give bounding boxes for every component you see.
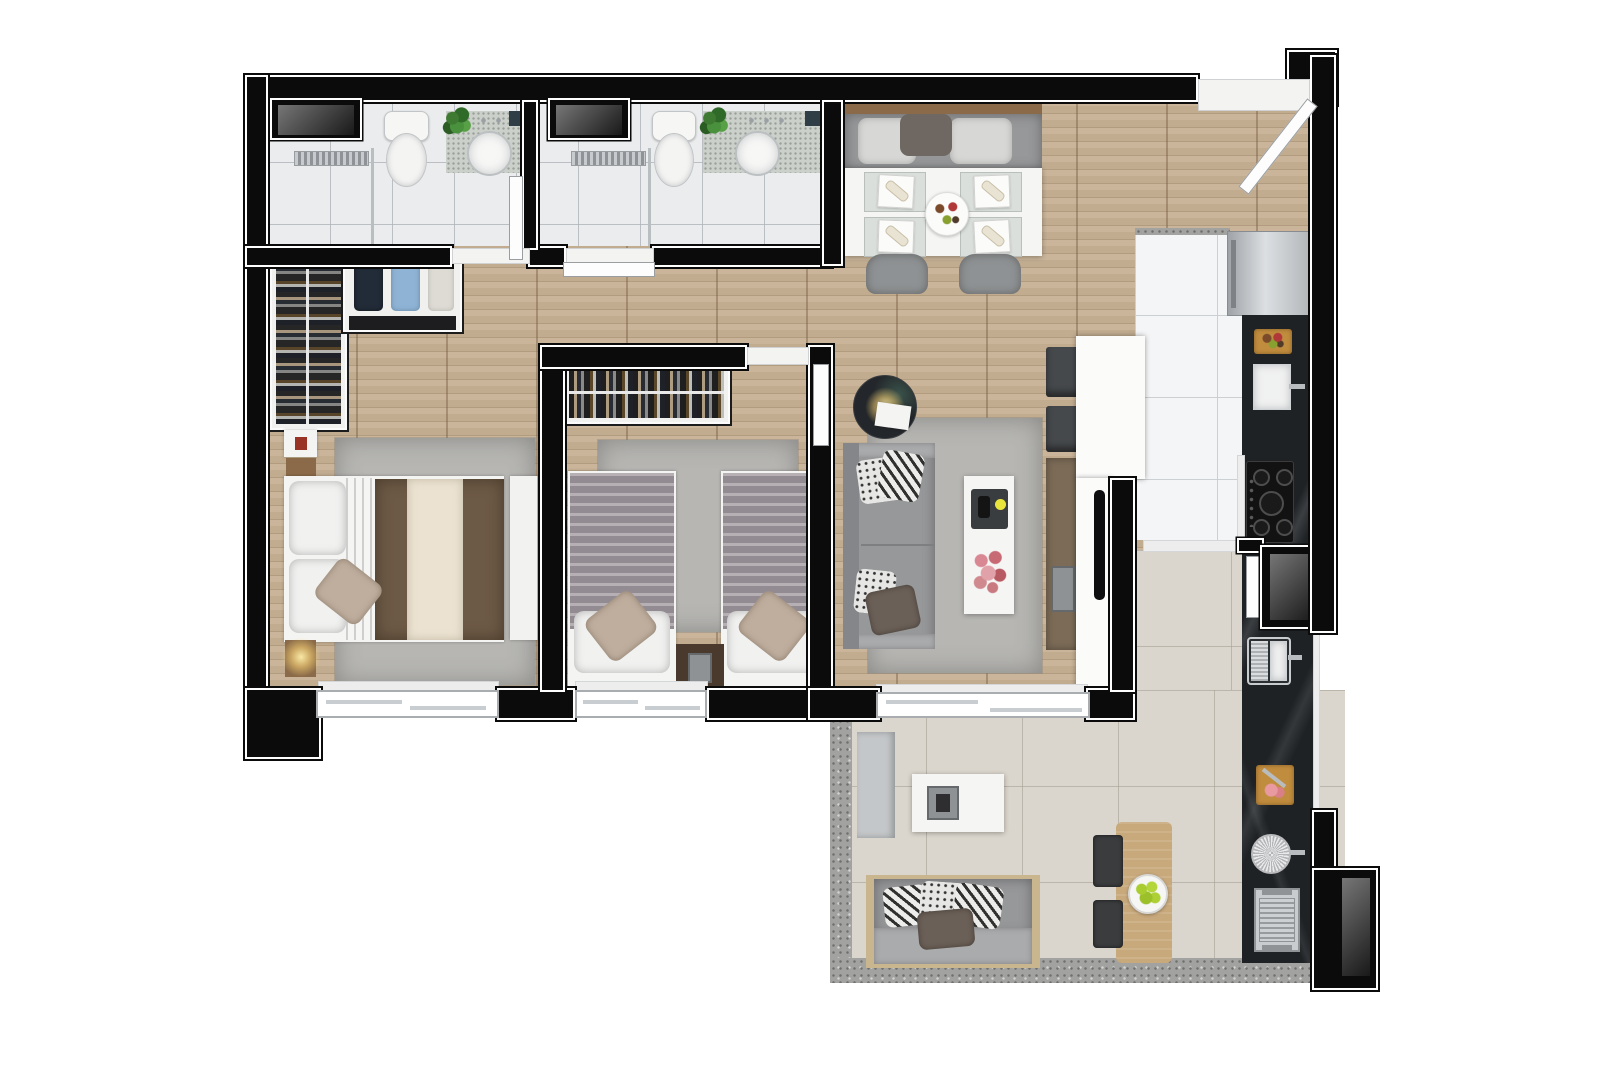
bath2-faucet: [742, 114, 786, 124]
tv-cabinet: [1046, 458, 1080, 650]
burner-3: [1259, 491, 1284, 516]
wardrobe-top-base: [349, 316, 456, 330]
bedroom1-dresser: [510, 476, 540, 640]
bath2-toilet-bowl: [654, 133, 694, 187]
cooktop-knobs: [1248, 477, 1256, 527]
centerpiece-dots: [929, 196, 965, 232]
bedroom2-nightstand-decor: [688, 653, 712, 683]
bed1-runner: [407, 479, 463, 640]
coffee-flowers: [968, 545, 1012, 597]
bath2-plant: [699, 105, 729, 138]
balcony-chair-2: [1093, 900, 1123, 948]
wall-bath-dining: [822, 100, 843, 266]
bath1-shower-drain: [294, 151, 369, 166]
balcony-sliding-door: [876, 692, 1090, 718]
wall-bedroom2-top: [540, 345, 747, 369]
balcony-pillow-4: [916, 908, 975, 951]
entry-threshold: [1198, 79, 1310, 111]
tv-cabinet-decor: [1051, 566, 1075, 612]
bedroom2-door: [813, 364, 829, 446]
balcony-chair-1: [1093, 835, 1123, 887]
laundry-basin: [1270, 641, 1287, 681]
balcony-granite-left: [830, 718, 852, 983]
pillar-niche: [1342, 878, 1370, 976]
laundry-washboard: [1251, 641, 1268, 681]
wall-right-lower: [1312, 810, 1336, 870]
bedroom1-window-glass-a: [326, 700, 402, 704]
kitchen-faucet: [1289, 384, 1305, 389]
bath1-shower-glass: [371, 148, 374, 246]
island-stool-2: [1046, 406, 1080, 452]
tray-yellow-ball: [995, 499, 1006, 510]
bath2-shower-glass: [648, 148, 651, 246]
spice-dots: [1258, 332, 1288, 350]
kitchen-sink: [1253, 364, 1291, 410]
wall-right: [1310, 55, 1336, 633]
nightstand-book: [295, 437, 307, 450]
bath2-soap-dish: [805, 111, 823, 126]
bedroom2-window-glass-a: [583, 700, 638, 704]
bedroom1-window: [316, 690, 499, 718]
nightstand-lamp-glow: [281, 637, 321, 677]
bedroom2-door-threshold: [747, 347, 809, 365]
dining-chair-1: [866, 254, 928, 294]
island-stool-1: [1046, 347, 1080, 397]
bath1-door: [509, 176, 523, 260]
wall-between-baths: [522, 100, 538, 250]
wardrobe-tall-divider: [306, 259, 309, 424]
tv: [1094, 490, 1105, 600]
balcony-slider-glass-a: [886, 700, 978, 704]
bbq-handle-bottom: [1262, 945, 1292, 950]
bath1-toilet-bowl: [386, 133, 427, 187]
bed1-pillow-1: [289, 481, 346, 555]
burner-2: [1276, 469, 1293, 486]
wall-left: [245, 75, 268, 759]
wall-window-pier-1: [497, 688, 575, 720]
balcony-round-sink: [1251, 834, 1291, 874]
balcony-cabinet: [857, 732, 895, 838]
bench-pillow-right: [950, 118, 1012, 164]
folded-clothes-navy: [354, 263, 383, 311]
wall-bath-bottom-c: [652, 246, 832, 267]
wardrobe2-divider: [569, 391, 724, 394]
side-table-card: [874, 402, 911, 430]
burner-5: [1276, 519, 1293, 536]
folded-clothes-cream: [428, 263, 454, 311]
fridge-handle: [1231, 240, 1236, 308]
bedroom2-window: [575, 690, 707, 718]
bath1-sink: [467, 131, 512, 176]
sofa-seam: [861, 544, 935, 546]
laundry-faucet: [1288, 655, 1302, 660]
balcony-slider-glass-b: [990, 708, 1082, 712]
balcony-sink-faucet: [1289, 850, 1305, 855]
wall-kitchen-living: [1110, 478, 1135, 692]
wall-balcony-stub-left: [808, 688, 880, 720]
bath2-door: [563, 262, 655, 277]
bath2-shower-drain: [571, 151, 646, 166]
bbq-handle-top: [1262, 890, 1292, 895]
board-meat: [1260, 782, 1288, 800]
tray-figure: [978, 496, 990, 518]
dining-chair-2: [959, 254, 1021, 294]
bench-pillow-center: [900, 114, 952, 156]
wall-corner-bottom-left: [245, 688, 321, 759]
bedroom1-shelf-decor: [286, 458, 316, 478]
bath1-niche: [278, 105, 354, 135]
fruit-apples: [1132, 878, 1164, 910]
cooktop-edge: [1237, 455, 1245, 545]
wall-bath-bottom-a: [245, 246, 452, 267]
shaft-interior: [1270, 554, 1314, 620]
folded-clothes-blue: [391, 263, 420, 311]
bath2-niche: [556, 105, 622, 135]
wall-bedroom2-left: [540, 345, 565, 692]
kitchen-island: [1076, 336, 1145, 479]
sofa-pillow-2: [876, 449, 926, 504]
fridge: [1227, 231, 1312, 316]
wall-balcony-stub-right: [1086, 688, 1135, 720]
service-divider-sill: [1143, 540, 1239, 552]
bath2-sink: [735, 131, 780, 176]
wall-top: [245, 75, 1198, 102]
kitchen-floor-transition: [1135, 228, 1230, 235]
bedroom2-window-glass-b: [645, 706, 700, 710]
bath1-plant: [442, 105, 472, 138]
bbq-grate: [1259, 898, 1295, 942]
console-frame-art: [936, 794, 950, 812]
bedroom1-window-glass-b: [410, 706, 486, 710]
floor-plan-canvas: [0, 0, 1600, 1067]
